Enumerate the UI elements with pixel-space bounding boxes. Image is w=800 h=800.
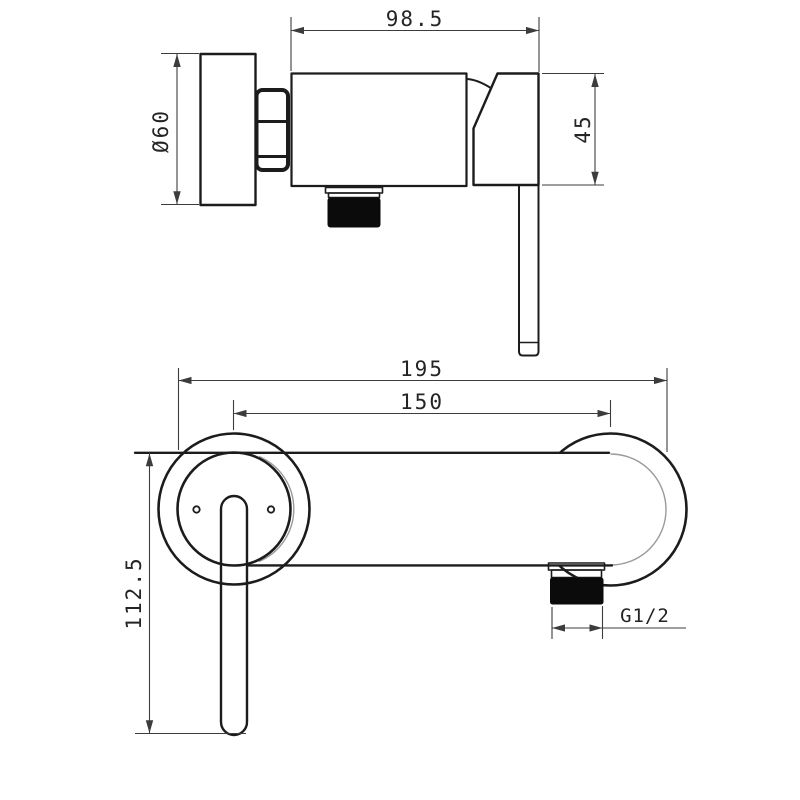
outlet-collar-upper	[326, 188, 383, 194]
dim-outlet-thread-label: G1/2	[620, 605, 670, 627]
lever-handle-bar	[519, 185, 539, 356]
screw-hole-right	[268, 506, 274, 512]
shower-outlet-side	[326, 188, 383, 228]
dim-body-height: 45	[542, 74, 604, 186]
dim-centres-label: 150	[400, 390, 444, 414]
left-flange-outer-circle	[159, 434, 310, 585]
front-view: 195 150 112.5 G1/2	[122, 357, 687, 735]
body-capsule-face	[318, 453, 665, 566]
arrowhead-right	[598, 410, 611, 417]
dim-depth: 98.5	[291, 7, 539, 72]
handle-front	[221, 496, 247, 735]
arrowhead-right	[590, 624, 603, 631]
wall-flange-plate	[201, 54, 256, 205]
valve-body-side	[292, 74, 467, 187]
dim-flange-diameter: Ø60	[149, 54, 199, 205]
lever-cap-side	[474, 74, 539, 186]
arrowhead-up	[173, 54, 180, 67]
technical-drawing-canvas: 98.5 45 Ø60	[0, 0, 800, 800]
screw-hole-left	[193, 506, 199, 512]
outlet-knurled-nut	[328, 198, 381, 228]
dim-depth-label: 98.5	[386, 7, 445, 31]
arrowhead-up	[146, 453, 153, 466]
outlet-collar-lower	[329, 193, 380, 198]
arrowhead-left	[291, 27, 304, 34]
dim-flange-diameter-label: Ø60	[149, 109, 173, 153]
dim-body-height-label: 45	[571, 114, 595, 143]
arrowhead-up	[591, 74, 598, 87]
arrowhead-left	[179, 377, 192, 384]
arrowhead-right	[654, 377, 667, 384]
arrowhead-down	[591, 172, 598, 185]
arrowhead-right	[526, 27, 539, 34]
arrowhead-down	[173, 191, 180, 204]
arrowhead-left	[552, 624, 565, 631]
dim-overall-width-label: 195	[400, 357, 444, 381]
outlet-knurled-nut-front	[550, 578, 604, 605]
lever-handle-side	[519, 185, 539, 356]
shower-outlet-front	[549, 563, 605, 605]
arrowhead-down	[146, 720, 153, 733]
side-view: 98.5 45 Ø60	[149, 7, 604, 356]
dim-overall-height-label: 112.5	[122, 556, 146, 629]
dim-centres: 150	[234, 390, 611, 430]
dim-outlet-thread: G1/2	[552, 605, 686, 639]
arrowhead-left	[234, 410, 247, 417]
hex-nut	[257, 90, 289, 170]
dim-overall-height: 112.5	[122, 453, 246, 734]
cartridge-dome-edge	[467, 79, 490, 88]
